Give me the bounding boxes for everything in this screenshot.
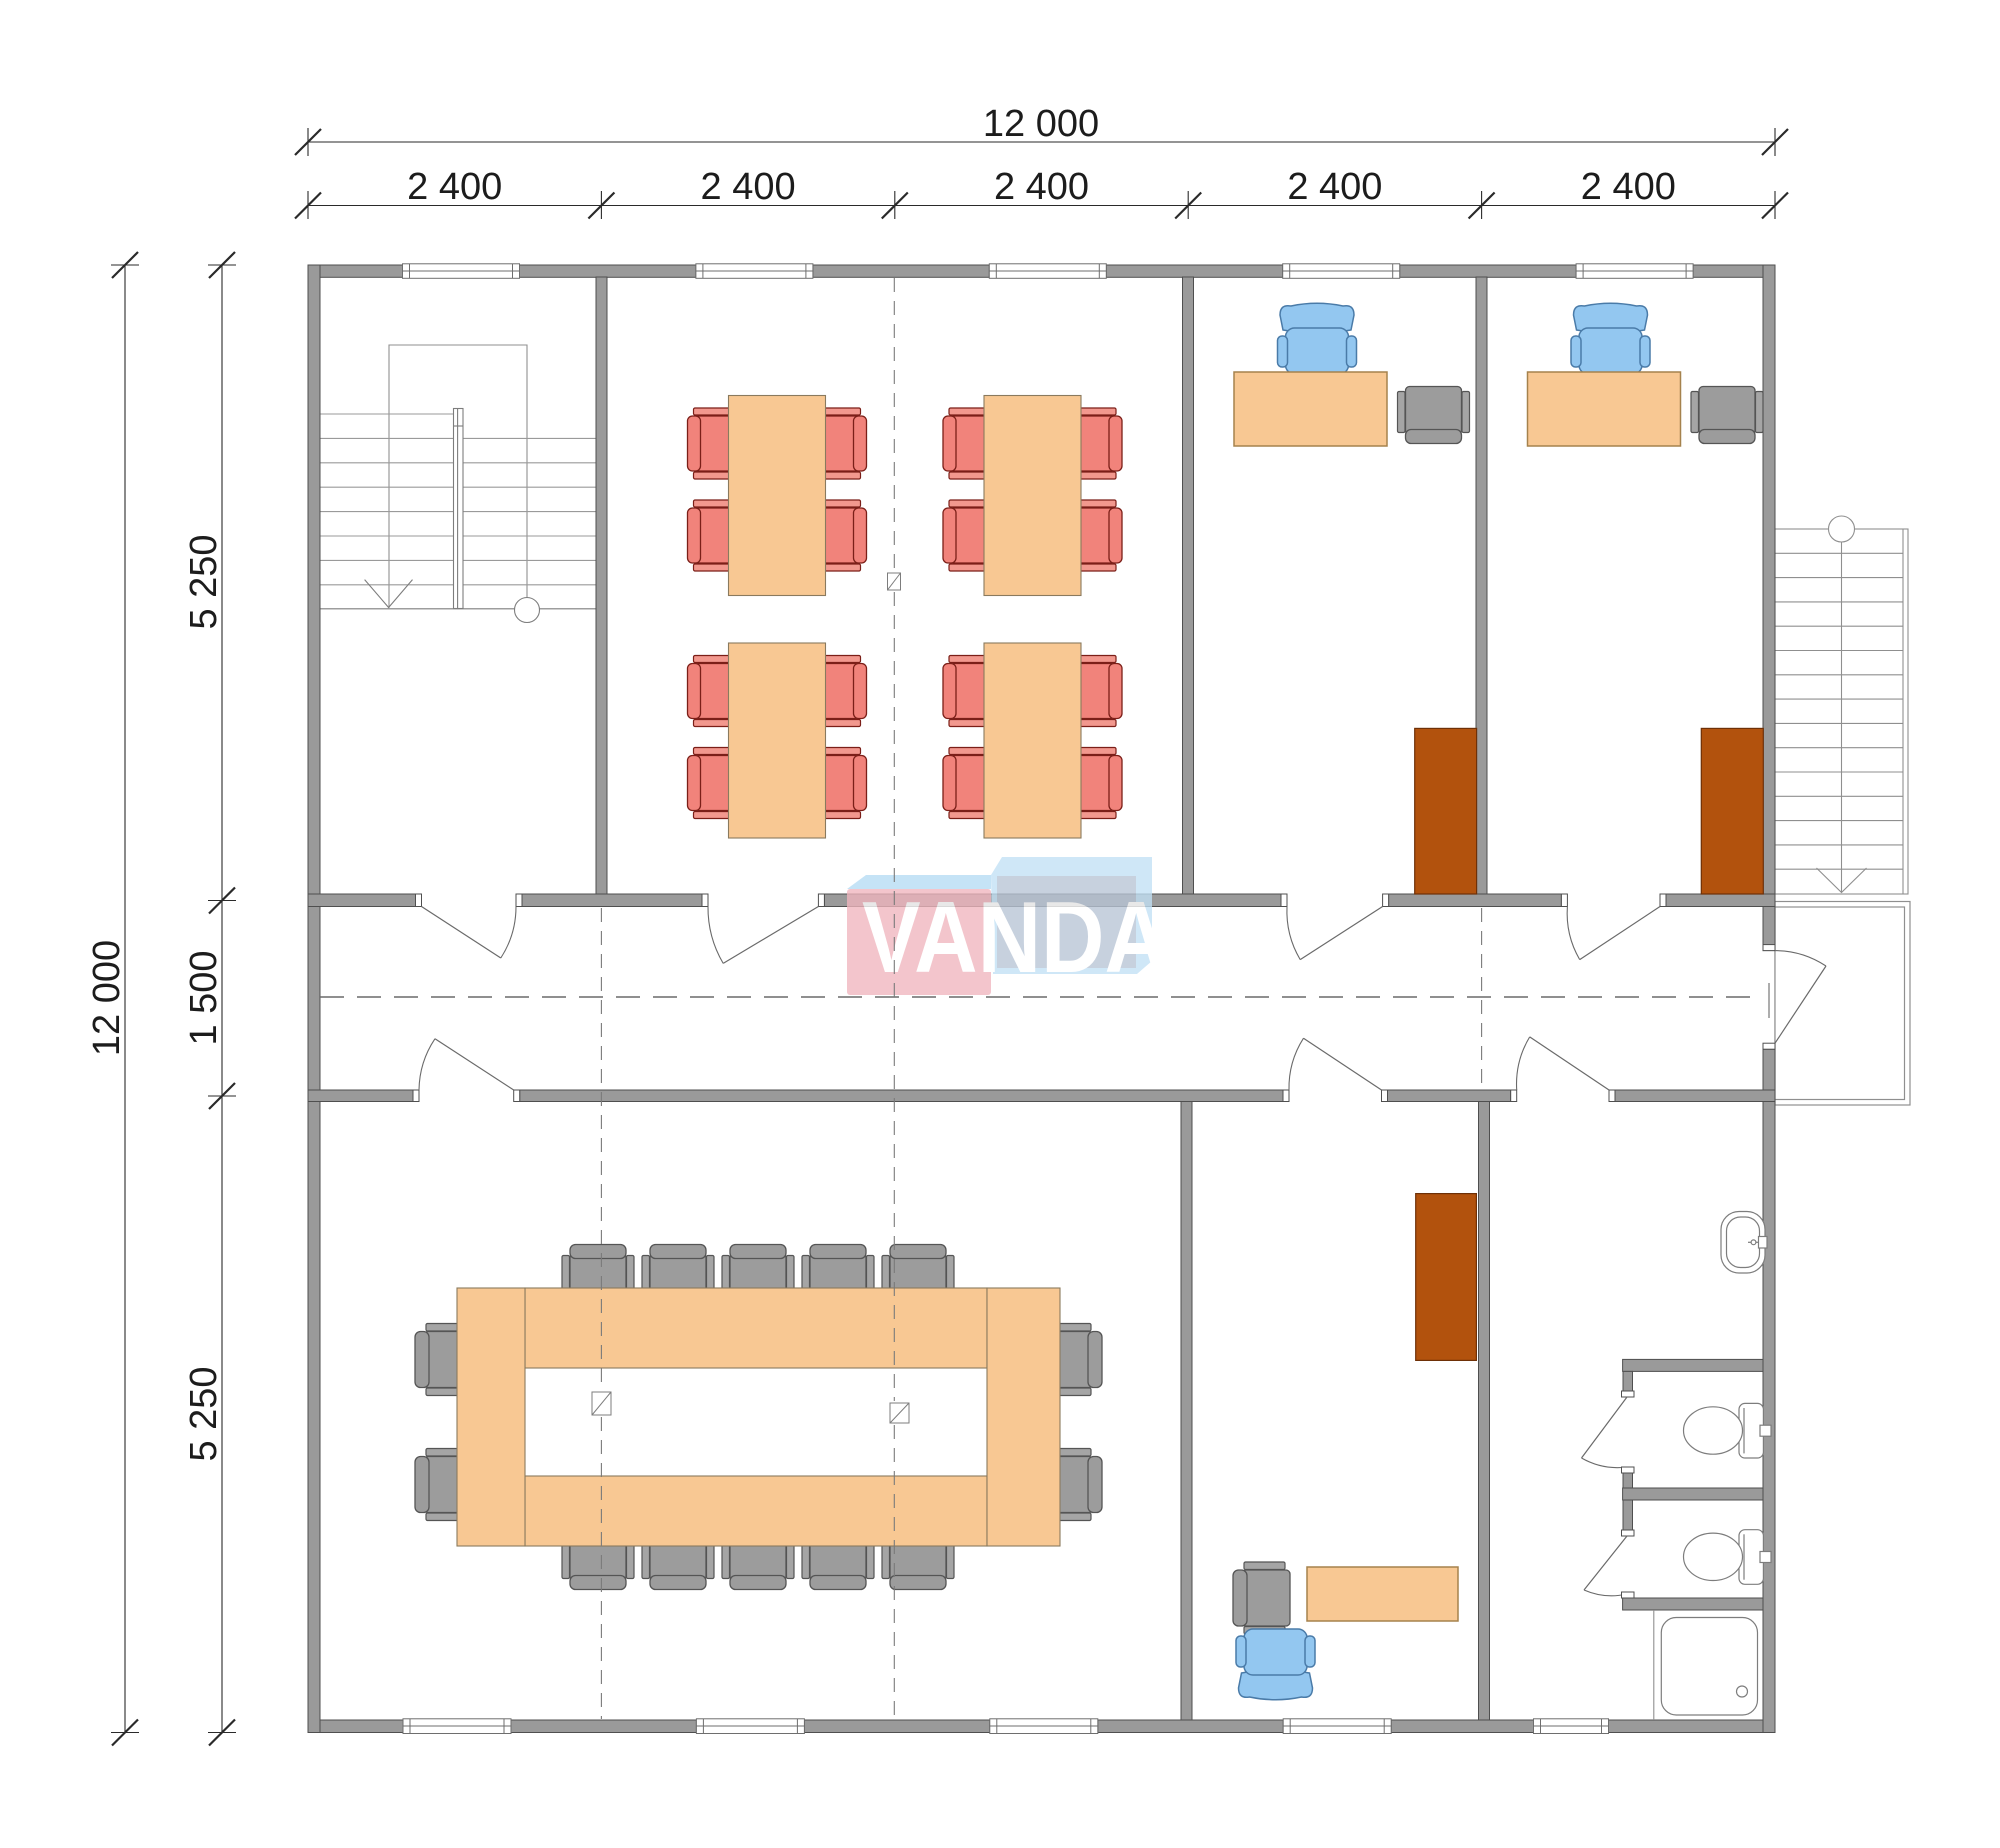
- svg-text:5 250: 5 250: [183, 534, 225, 629]
- svg-text:5 250: 5 250: [183, 1366, 225, 1461]
- svg-text:2 400: 2 400: [1581, 166, 1676, 208]
- svg-text:2 400: 2 400: [994, 166, 1089, 208]
- svg-text:2 400: 2 400: [407, 166, 502, 208]
- svg-text:VANDA: VANDA: [862, 882, 1168, 994]
- svg-text:1 500: 1 500: [183, 950, 225, 1045]
- svg-text:2 400: 2 400: [701, 166, 796, 208]
- svg-text:12 000: 12 000: [983, 103, 1099, 145]
- svg-text:2 400: 2 400: [1287, 166, 1382, 208]
- svg-text:12 000: 12 000: [86, 940, 128, 1056]
